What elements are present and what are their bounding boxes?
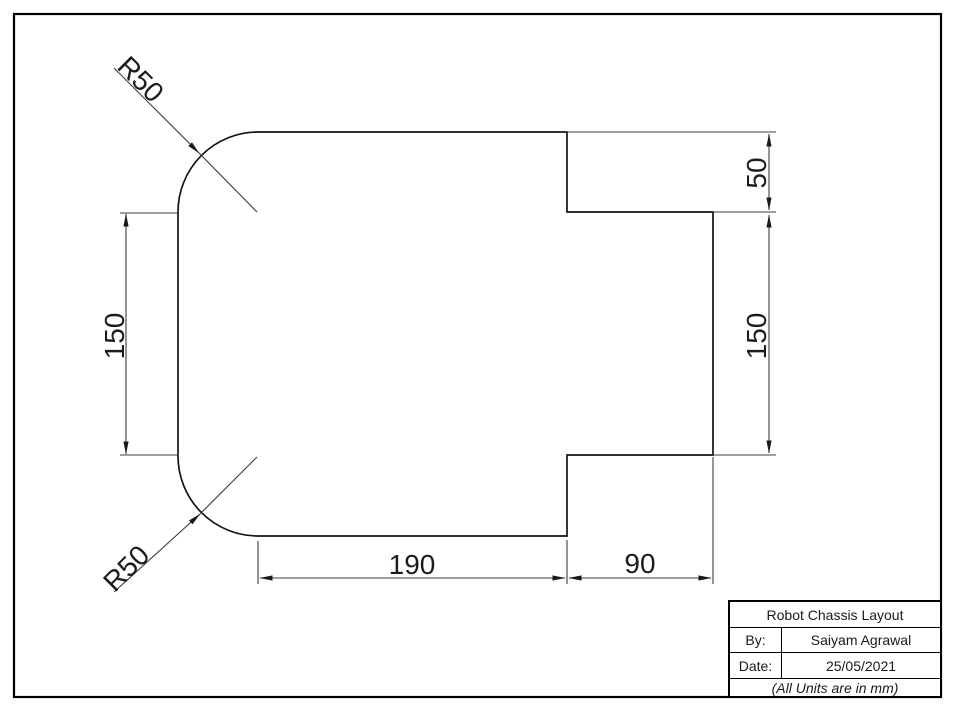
date-value-cell: 25/05/2021 — [782, 653, 940, 678]
radius-label-bottom-left: R50 — [97, 539, 155, 597]
radius-leader-line — [199, 153, 257, 212]
chassis-outline-path — [178, 132, 713, 536]
date-label-cell: Date: — [730, 653, 782, 678]
dimension-label-right-step-height: 50 — [741, 157, 772, 188]
dimension-label-bottom-main-width: 190 — [389, 549, 436, 580]
drawing-sheet: 150 50 150 190 90 R50 R50 Robot Chassis … — [0, 0, 955, 708]
title-block-date-row: Date: 25/05/2021 — [730, 653, 940, 679]
by-label: By: — [745, 632, 765, 648]
date-label: Date: — [739, 658, 772, 674]
author-name: Saiyam Agrawal — [811, 632, 911, 648]
title-block-units-row: (All Units are in mm) — [730, 679, 940, 696]
dimension-label-bottom-tab-width: 90 — [624, 548, 655, 579]
radius-leader-line — [200, 457, 257, 514]
title-block-by-row: By: Saiyam Agrawal — [730, 628, 940, 653]
sheet-border — [14, 14, 941, 697]
radius-label-top-left: R50 — [112, 50, 170, 108]
drawing-date: 25/05/2021 — [826, 658, 896, 674]
dimension-label-left-height: 150 — [99, 313, 130, 360]
title-block-title-row: Robot Chassis Layout — [730, 602, 940, 628]
by-value-cell: Saiyam Agrawal — [782, 628, 940, 652]
dimension-label-right-tab-height: 150 — [741, 313, 772, 360]
by-label-cell: By: — [730, 628, 782, 652]
drawing-title: Robot Chassis Layout — [767, 607, 904, 623]
units-note: (All Units are in mm) — [772, 680, 899, 696]
title-block: Robot Chassis Layout By: Saiyam Agrawal … — [728, 600, 942, 698]
